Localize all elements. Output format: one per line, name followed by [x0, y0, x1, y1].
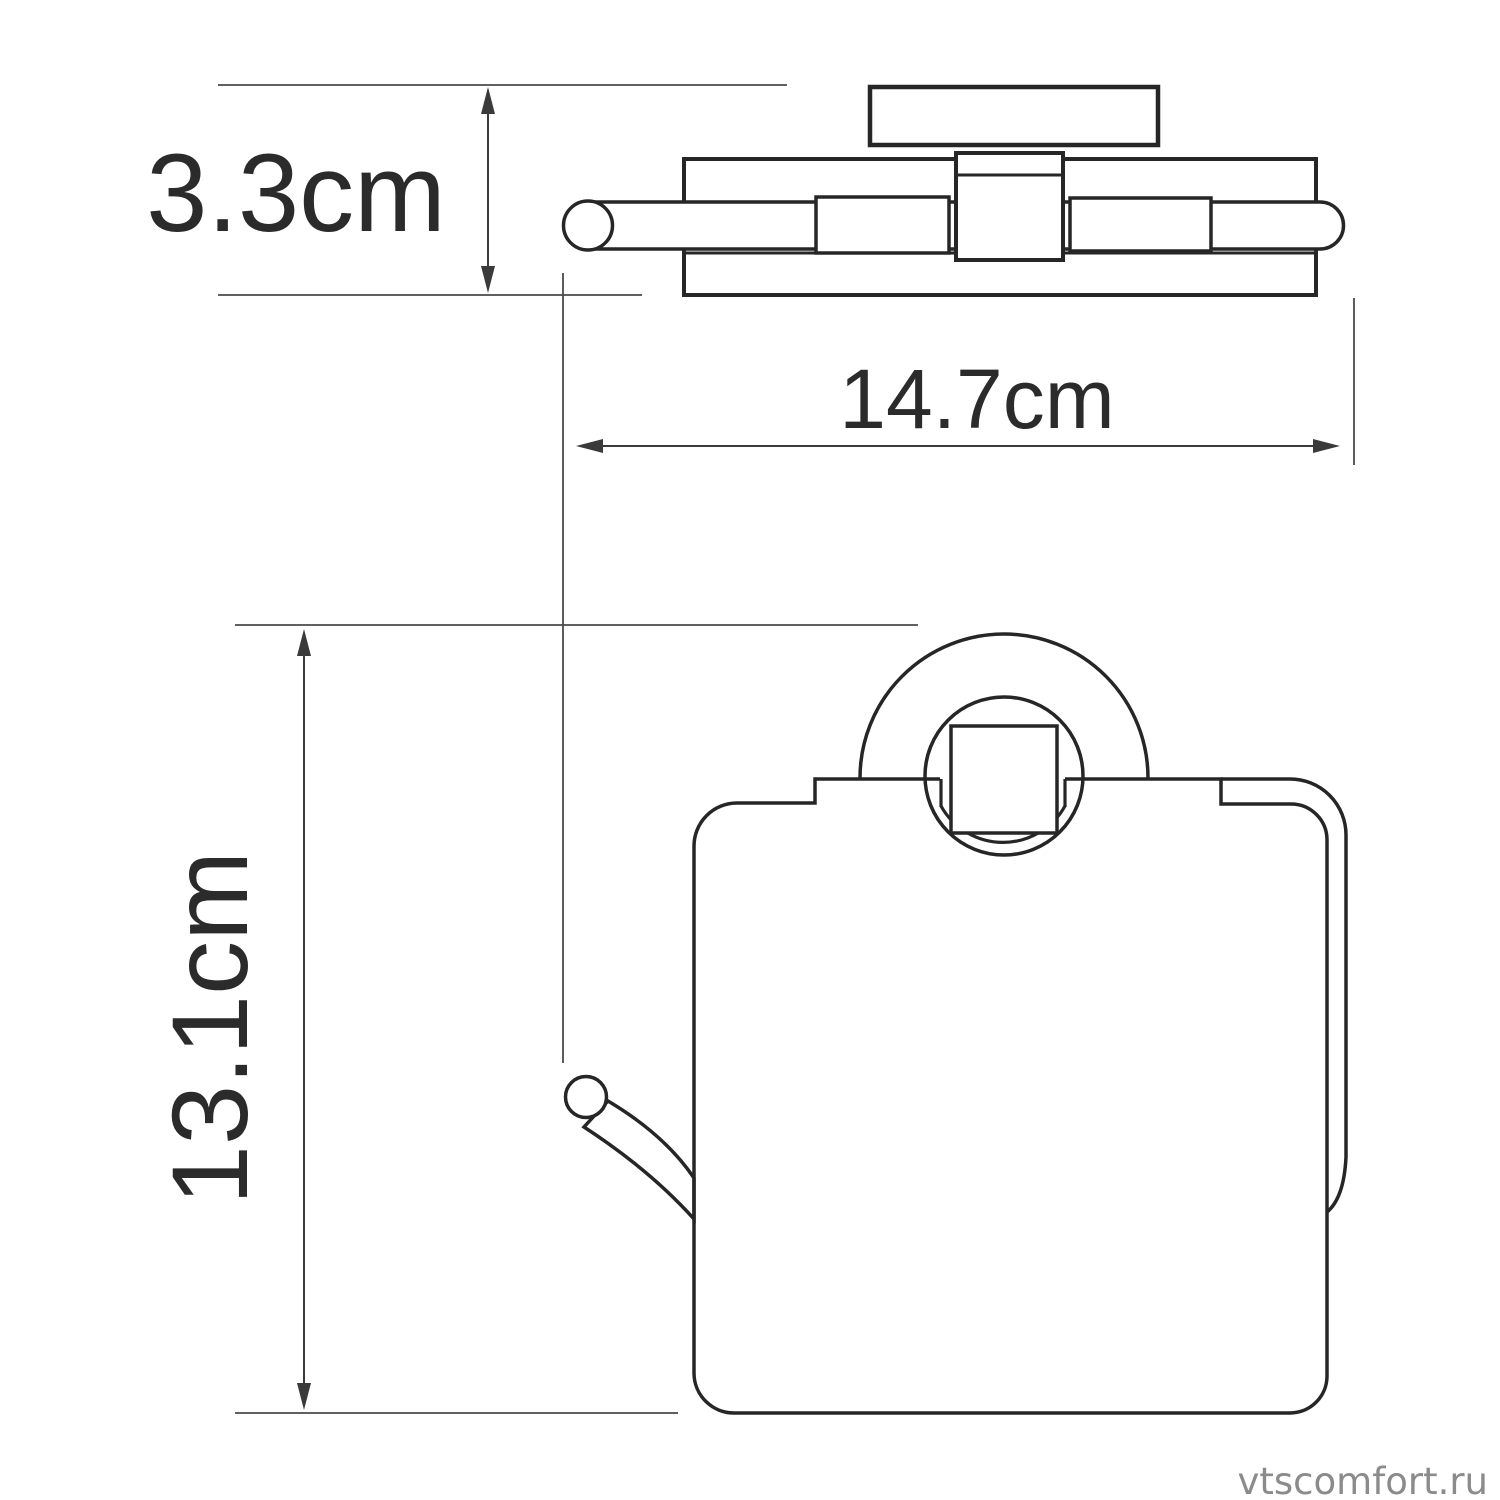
front-view [566, 634, 1347, 1413]
top-view-right-flange [1070, 198, 1211, 251]
arrowhead-down-icon [481, 266, 495, 293]
top-view-wall-plate [870, 87, 1158, 145]
top-view-center-bracket [956, 153, 1063, 260]
top-view-roll-bar-end-knob [564, 201, 613, 250]
arrowhead-right-icon [1313, 439, 1340, 453]
dimension-label-depth: 3.3cm [146, 132, 446, 255]
drawing-canvas: 3.3cm 14.7cm 13.1cm [0, 0, 1500, 1500]
arrowhead-left-icon [576, 439, 603, 453]
front-view-hook-knob [566, 1077, 607, 1118]
dimension-label-width: 14.7cm [839, 352, 1114, 446]
top-view-left-flange [816, 197, 949, 253]
arrowhead-up-icon [481, 87, 495, 114]
technical-drawing: 3.3cm 14.7cm 13.1cm [0, 0, 1500, 1500]
front-view-hook-arm [584, 1101, 694, 1219]
front-view-cover [694, 779, 1327, 1413]
arrowhead-down-icon [297, 1383, 311, 1410]
dimension-13-1cm [235, 625, 918, 1413]
top-view [564, 87, 1344, 295]
dimension-label-height: 13.1cm [149, 851, 270, 1205]
arrowhead-up-icon [297, 629, 311, 656]
watermark: vtscomfort.ru [1237, 1460, 1488, 1500]
front-view-bracket-square [951, 726, 1057, 833]
